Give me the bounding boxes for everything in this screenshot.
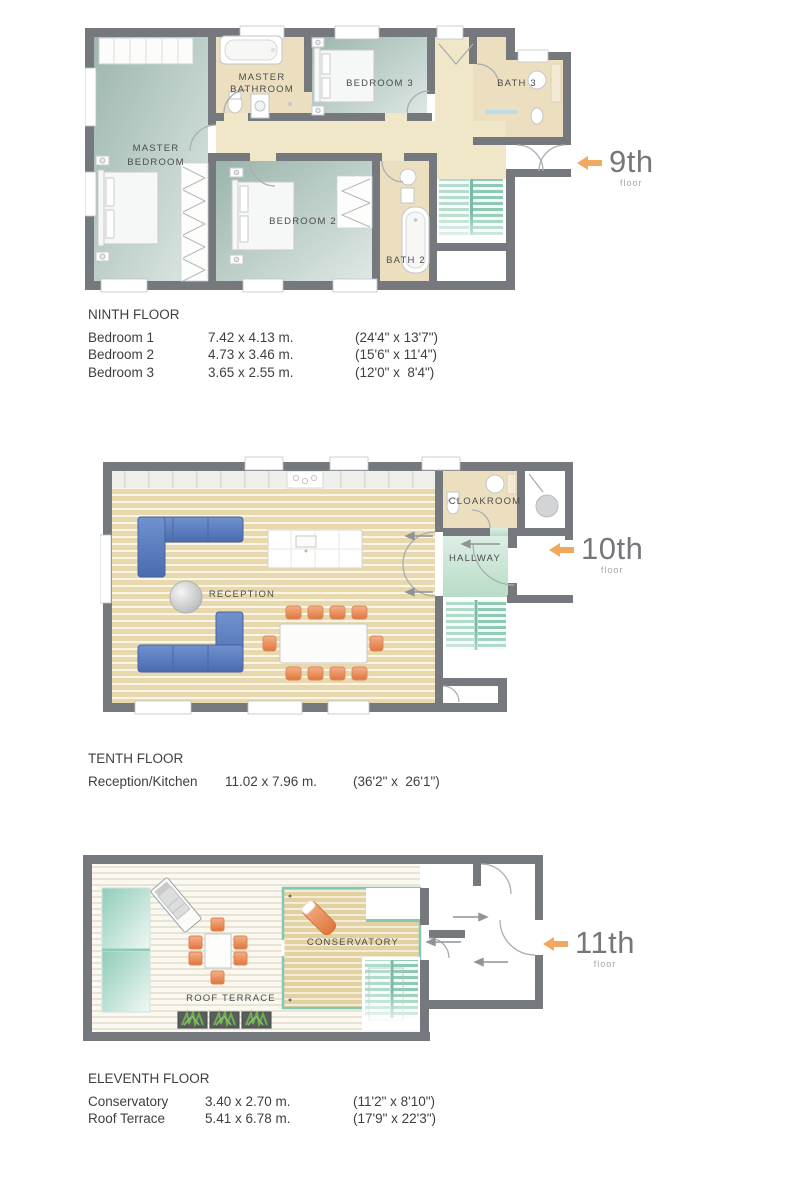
- plan-9th-floor: MASTER BATHROOM BEDROOM 3 BATH 3 MASTER …: [85, 22, 580, 295]
- floorplan-page: MASTER BATHROOM BEDROOM 3 BATH 3 MASTER …: [0, 0, 792, 1200]
- spec-metric: 4.73 x 3.46 m.: [208, 346, 355, 364]
- spec-room: Bedroom 2: [88, 346, 208, 364]
- staircase: [443, 600, 508, 678]
- plan-11th-floor: CONSERVATORY ROOF TERRACE: [83, 850, 548, 1050]
- left-arrow-icon: [577, 155, 602, 171]
- spec-room: Conservatory: [88, 1093, 205, 1111]
- closet-master: [181, 163, 208, 281]
- planters: [178, 1012, 271, 1028]
- room-label-bedroom2: BEDROOM 2: [269, 216, 337, 227]
- store-room-floor: [437, 251, 506, 281]
- spec-imperial: (12'0" x 8'4"): [355, 364, 434, 382]
- spec-imperial: (15'6" x 11'4"): [355, 346, 437, 364]
- room-label-hallway: HALLWAY: [449, 553, 501, 564]
- room-label-master-bathroom-1: MASTER: [239, 72, 286, 83]
- spec-metric: 3.40 x 2.70 m.: [205, 1093, 353, 1111]
- spec-room: Reception/Kitchen: [88, 773, 225, 791]
- plan-11th-floor-drawing: CONSERVATORY ROOF TERRACE: [83, 850, 548, 1050]
- glass-screen: [485, 110, 517, 114]
- sofa: [138, 645, 243, 672]
- coffee-table: [170, 581, 202, 613]
- spec-metric: 3.65 x 2.55 m.: [208, 364, 355, 382]
- floor-number: 9th: [609, 146, 654, 177]
- room-label-reception: RECEPTION: [209, 589, 275, 600]
- shower-head: [288, 102, 292, 106]
- left-arrow-icon: [549, 542, 574, 558]
- room-label-master-bedroom-1: MASTER: [133, 143, 180, 154]
- spec-row: Reception/Kitchen 11.02 x 7.96 m. (36'2"…: [88, 773, 440, 791]
- spec-table-tenth: TENTH FLOOR Reception/Kitchen 11.02 x 7.…: [88, 750, 440, 790]
- spec-title: NINTH FLOOR: [88, 306, 438, 324]
- spec-title: ELEVENTH FLOOR: [88, 1070, 436, 1088]
- bed-headboard: [98, 170, 104, 246]
- spec-table-eleventh: ELEVENTH FLOOR Conservatory 3.40 x 2.70 …: [88, 1070, 436, 1128]
- spec-metric: 7.42 x 4.13 m.: [208, 329, 355, 347]
- room-label-bedroom3: BEDROOM 3: [346, 78, 414, 89]
- floor-number: 11th: [575, 927, 635, 958]
- room-label-roof-terrace: ROOF TERRACE: [186, 993, 276, 1004]
- fixing-dot: [289, 895, 292, 898]
- floor-number-sub: floor: [575, 959, 635, 969]
- spec-metric: 5.41 x 6.78 m.: [205, 1110, 353, 1128]
- spec-room: Bedroom 3: [88, 364, 208, 382]
- spec-room: Bedroom 1: [88, 329, 208, 347]
- side-room-fixture: [536, 495, 558, 517]
- spec-room: Roof Terrace: [88, 1110, 205, 1128]
- room-label-cloakroom: CLOAKROOM: [449, 496, 522, 507]
- basin: [486, 475, 504, 493]
- spec-row: Conservatory 3.40 x 2.70 m. (11'2" x 8'1…: [88, 1093, 436, 1111]
- spec-imperial: (24'4" x 13'7"): [355, 329, 438, 347]
- spec-table-ninth: NINTH FLOOR Bedroom 1 7.42 x 4.13 m. (24…: [88, 306, 438, 381]
- plan-9th-floor-drawing: MASTER BATHROOM BEDROOM 3 BATH 3 MASTER …: [85, 22, 580, 295]
- hallway-floor: [443, 536, 508, 597]
- spec-row: Roof Terrace 5.41 x 6.78 m. (17'9" x 22'…: [88, 1110, 436, 1128]
- glass-panel: [102, 888, 150, 949]
- floor-number-sub: floor: [609, 178, 654, 188]
- closet-bedroom2: [337, 176, 372, 228]
- room-label-master-bedroom-2: BEDROOM: [127, 157, 185, 168]
- spec-imperial: (36'2" x 26'1"): [353, 773, 440, 791]
- conservatory-door-opening: [282, 940, 285, 956]
- floor-number: 10th: [581, 533, 643, 564]
- spec-metric: 11.02 x 7.96 m.: [225, 773, 353, 791]
- spec-title: TENTH FLOOR: [88, 750, 440, 768]
- room-label-bath3: BATH 3: [497, 78, 537, 89]
- spec-imperial: (11'2" x 8'10"): [353, 1093, 435, 1111]
- toilet: [531, 108, 543, 124]
- left-arrow-icon: [543, 936, 568, 952]
- room-label-bath2: BATH 2: [386, 255, 426, 266]
- spec-imperial: (17'9" x 22'3"): [353, 1110, 436, 1128]
- spec-row: Bedroom 3 3.65 x 2.55 m. (12'0" x 8'4"): [88, 364, 438, 382]
- room-label-conservatory: CONSERVATORY: [307, 937, 399, 948]
- bed-headboard: [232, 180, 238, 250]
- spec-row: Bedroom 1 7.42 x 4.13 m. (24'4" x 13'7"): [88, 329, 438, 347]
- hob: [287, 471, 323, 488]
- glass-panel: [102, 951, 150, 1012]
- room-label-master-bathroom-2: BATHROOM: [230, 84, 294, 95]
- staircase: [437, 161, 506, 251]
- plan-10th-floor: CLOAKROOM HALLWAY RECEPTION: [100, 440, 580, 732]
- cloakroom-door-opening: [490, 528, 508, 536]
- terrace-table: [205, 934, 231, 968]
- floor-marker-11th: 11th floor: [543, 927, 635, 969]
- upper-room-floor: [366, 888, 420, 922]
- floor-marker-9th: 9th floor: [577, 146, 654, 188]
- floor-number-sub: floor: [581, 565, 643, 575]
- toilet: [401, 188, 414, 203]
- plan-10th-floor-drawing: CLOAKROOM HALLWAY RECEPTION: [100, 440, 580, 732]
- kitchen-counter: [112, 471, 435, 488]
- spec-row: Bedroom 2 4.73 x 3.46 m. (15'6" x 11'4"): [88, 346, 438, 364]
- island-sink: [296, 536, 316, 547]
- fixing-dot: [289, 999, 292, 1002]
- staircase: [362, 957, 420, 1030]
- dining-table: [280, 624, 367, 663]
- bed-headboard: [314, 48, 320, 102]
- floor-marker-10th: 10th floor: [549, 533, 643, 575]
- sofa: [138, 517, 165, 577]
